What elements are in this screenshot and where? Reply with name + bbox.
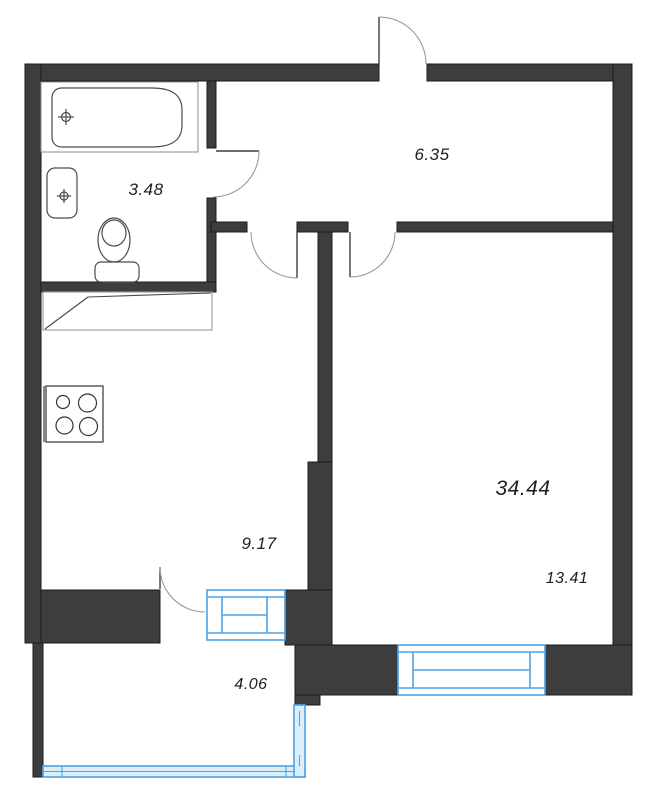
kitchen-door bbox=[251, 232, 297, 278]
wall-right bbox=[613, 64, 632, 645]
area-label-living-room: 13.41 bbox=[546, 570, 589, 588]
wall-balcony-left bbox=[33, 643, 43, 777]
area-label-hallway: 6.35 bbox=[414, 145, 449, 165]
area-label-balcony: 4.06 bbox=[234, 676, 267, 694]
area-label-kitchen: 9.17 bbox=[241, 534, 276, 554]
living-room-door bbox=[350, 232, 395, 277]
wall-bathroom-right-lower bbox=[207, 198, 216, 292]
balcony-glazing-bottom bbox=[43, 766, 305, 777]
wall-bathroom-right-upper bbox=[207, 81, 216, 148]
floor-plan: 3.48 6.35 9.17 34.44 13.41 4.06 bbox=[0, 0, 661, 800]
wall-room-bottom-left bbox=[295, 645, 398, 695]
living-room-door-arc bbox=[350, 232, 395, 277]
sink-icon bbox=[47, 168, 77, 218]
fixtures bbox=[41, 82, 212, 442]
kitchen-balcony-window bbox=[207, 590, 285, 640]
wall-bathroom-bottom bbox=[41, 282, 216, 292]
wall-divider-lower bbox=[308, 462, 332, 590]
area-label-total: 34.44 bbox=[495, 477, 550, 501]
wall-balcony-step bbox=[295, 695, 320, 705]
counter-icon bbox=[43, 292, 212, 330]
bathroom-door bbox=[213, 151, 259, 197]
wall-divider-upper bbox=[318, 232, 332, 462]
wall-left bbox=[25, 64, 41, 643]
wall-hall-right bbox=[397, 222, 613, 232]
floor-plan-drawing bbox=[0, 0, 661, 800]
stove-icon bbox=[44, 386, 103, 442]
entrance-door-arc bbox=[379, 17, 426, 64]
living-room-window bbox=[398, 645, 545, 695]
wall-hall-stub-left bbox=[211, 222, 247, 232]
balcony-door bbox=[160, 567, 205, 612]
balcony-glazing-right bbox=[294, 705, 305, 777]
kitchen-door-arc bbox=[251, 232, 297, 278]
wall-top-left bbox=[25, 64, 379, 81]
wall-hall-mid bbox=[297, 222, 348, 232]
wall-kitchen-balcony-right bbox=[285, 590, 332, 645]
wall-kitchen-balcony-left bbox=[41, 590, 160, 643]
entrance-door bbox=[379, 17, 426, 64]
area-label-bathroom: 3.48 bbox=[128, 180, 163, 200]
toilet-tank bbox=[95, 262, 139, 282]
toilet-icon bbox=[95, 218, 139, 282]
balcony-door-arc bbox=[160, 567, 205, 612]
toilet-bowl bbox=[98, 218, 130, 262]
bathroom-door-arc bbox=[213, 151, 259, 197]
wall-top-right bbox=[427, 64, 632, 81]
bathtub-icon bbox=[41, 82, 198, 152]
wall-room-bottom-right bbox=[545, 645, 632, 695]
